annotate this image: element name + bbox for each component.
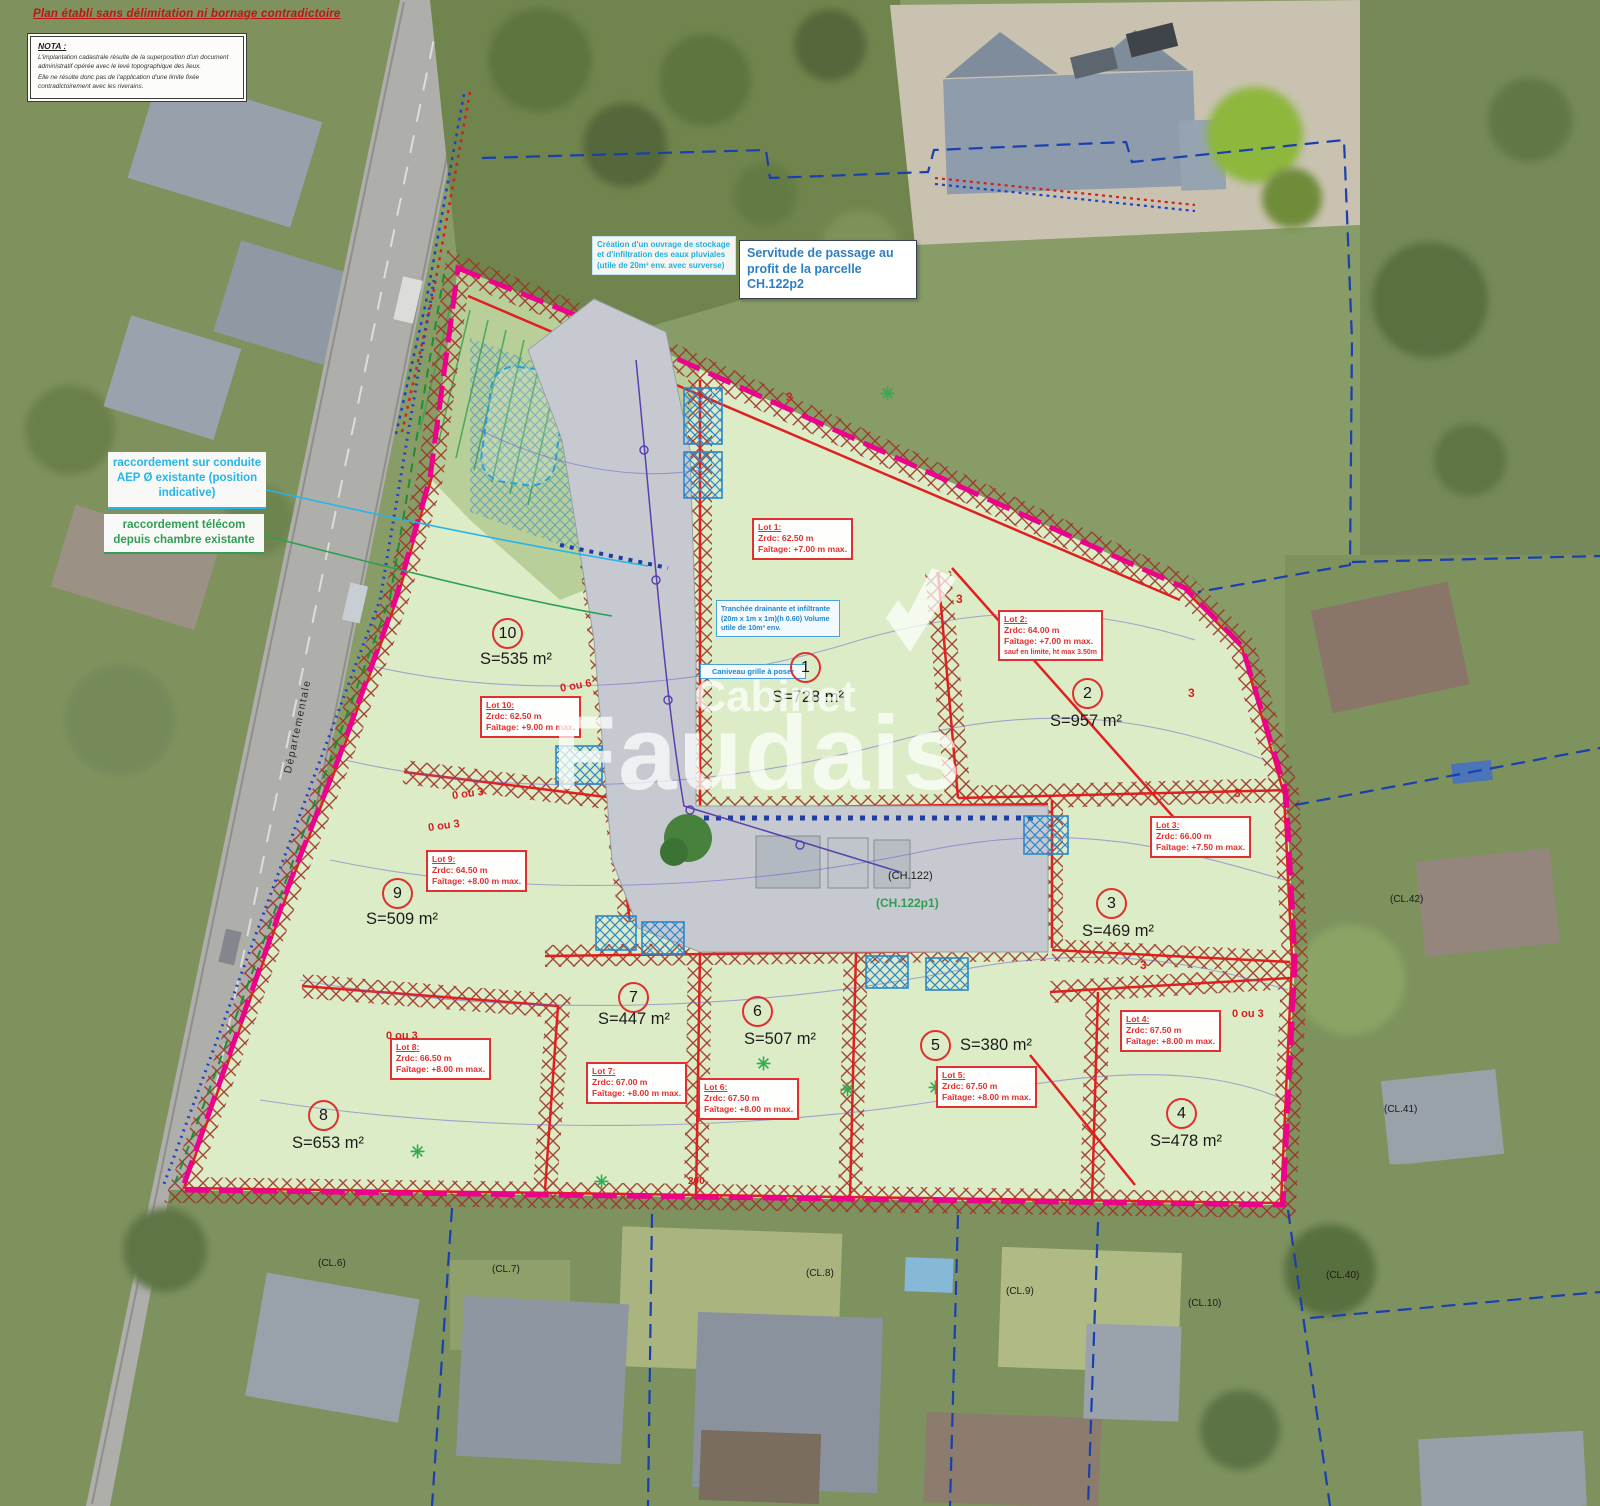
lot-4-faitage: Faîtage: +8.00 m max. [1126,1036,1215,1047]
scanned-subdivision-plan: ✳✳✳ ✳✳✳ Plan établi sans délimitation ni… [0,0,1600,1506]
parcel-ch122p1: (CH.122p1) [876,896,939,910]
setback-label-3: 0 ou 3 [386,1030,418,1042]
lot-8-faitage: Faîtage: +8.00 m max. [396,1064,485,1075]
svg-text:✳: ✳ [410,1142,425,1162]
lot-6-number: 6 [742,996,773,1027]
parcel-cl8: (CL.8) [806,1268,834,1279]
lot-4-number: 4 [1166,1098,1197,1129]
lot-9-area: S=509 m² [366,910,438,929]
lot-6-faitage: Faîtage: +8.00 m max. [704,1104,793,1115]
parcel-ch122: (CH.122) [888,870,933,882]
svg-text:✳: ✳ [840,1080,855,1100]
lot-3-info: Lot 3: Zrdc: 66.00 m Faîtage: +7.50 m ma… [1150,816,1251,858]
lot-8-number: 8 [308,1100,339,1131]
parcel-cl10: (CL.10) [1188,1298,1221,1309]
lot-9-info: Lot 9: Zrdc: 64.50 m Faîtage: +8.00 m ma… [426,850,527,892]
lot-7-label: Lot 7: [592,1066,681,1077]
lot-2-zrdc: Zrdc: 64.00 m [1004,625,1097,636]
servitude-note: Servitude de passage au profit de la par… [739,240,917,299]
lot-3-area: S=469 m² [1082,922,1154,941]
infiltration-trench-note: Tranchée drainante et infiltrante (20m x… [716,600,840,637]
aep-connection-note: raccordement sur conduite AEP Ø existant… [108,452,266,509]
lot-5-faitage: Faîtage: +8.00 m max. [942,1092,1031,1103]
lot-3-label: Lot 3: [1156,820,1245,831]
dimension-3d: 3 [1140,958,1147,972]
svg-text:✳: ✳ [756,1054,771,1074]
telecom-connection-note: raccordement télécom depuis chambre exis… [104,514,264,554]
plan-title: Plan établi sans délimitation ni bornage… [33,8,341,20]
lot-3-faitage: Faîtage: +7.50 m max. [1156,842,1245,853]
dimension-3c: 3 [1188,686,1195,700]
svg-text:✳: ✳ [594,1172,609,1192]
lot-2-faitage: Faîtage: +7.00 m max. [1004,636,1097,647]
lot-8-zrdc: Zrdc: 66.50 m [396,1053,485,1064]
dimension-3b: 3 [956,592,963,606]
lot-9-faitage: Faîtage: +8.00 m max. [432,876,521,887]
lot-4-label: Lot 4: [1126,1014,1215,1025]
lot-6-zrdc: Zrdc: 67.50 m [704,1093,793,1104]
lot-3-zrdc: Zrdc: 66.00 m [1156,831,1245,842]
parcel-cl42: (CL.42) [1390,894,1423,905]
lot-8-info: Lot 8: Zrdc: 66.50 m Faîtage: +8.00 m ma… [390,1038,491,1080]
lot-6-area: S=507 m² [744,1030,816,1049]
lot-3-number: 3 [1096,888,1127,919]
parcel-cl6: (CL.6) [318,1258,346,1269]
lot-2-number: 2 [1072,678,1103,709]
lot-7-faitage: Faîtage: +8.00 m max. [592,1088,681,1099]
lot-4-info: Lot 4: Zrdc: 67.50 m Faîtage: +8.00 m ma… [1120,1010,1221,1052]
lot-4-zrdc: Zrdc: 67.50 m [1126,1025,1215,1036]
lot-5-info: Lot 5: Zrdc: 67.50 m Faîtage: +8.00 m ma… [936,1066,1037,1108]
lot-5-number: 5 [920,1030,951,1061]
lot-4-area: S=478 m² [1150,1132,1222,1151]
lot-7-zrdc: Zrdc: 67.00 m [592,1077,681,1088]
lot-7-info: Lot 7: Zrdc: 67.00 m Faîtage: +8.00 m ma… [586,1062,687,1104]
lot-9-number: 9 [382,878,413,909]
lot-8-label: Lot 8: [396,1042,485,1053]
parcel-cl9: (CL.9) [1006,1286,1034,1297]
dimension-3e: 3 [1234,786,1241,800]
lot-7-number: 7 [618,982,649,1013]
parcel-cl7: (CL.7) [492,1264,520,1275]
parcel-cl40: (CL.40) [1326,1270,1359,1281]
lot-1-label: Lot 1: [758,522,847,533]
setback-label-4: 0 ou 3 [1232,1008,1264,1020]
stormwater-note: Création d'un ouvrage de stockage et d'i… [592,236,736,275]
watermark-line-2: Faudais [552,694,963,814]
lot-6-info: Lot 6: Zrdc: 67.50 m Faîtage: +8.00 m ma… [698,1078,799,1120]
lot-9-label: Lot 9: [432,854,521,865]
lot-5-area: S=380 m² [960,1036,1032,1055]
nota-heading: NOTA : [38,41,236,51]
lot-2-info: Lot 2: Zrdc: 64.00 m Faîtage: +7.00 m ma… [998,610,1103,661]
lot-10-area: S=535 m² [480,650,552,669]
nota-paragraph-1: L'implantation cadastrale résulte de la … [38,54,236,71]
lot-9-zrdc: Zrdc: 64.50 m [432,865,521,876]
nota-paragraph-2: Elle ne résulte donc pas de l'applicatio… [38,74,236,91]
lot-6-label: Lot 6: [704,1082,793,1093]
lot-5-label: Lot 5: [942,1070,1031,1081]
lot-1-faitage: Faîtage: +7.00 m max. [758,544,847,555]
svg-text:✳: ✳ [880,384,895,404]
nota-box: NOTA : L'implantation cadastrale résulte… [30,36,244,99]
lot-10-number: 10 [492,618,523,649]
lot-8-area: S=653 m² [292,1134,364,1153]
lot-7-area: S=447 m² [598,1010,670,1029]
lot-2-label: Lot 2: [1004,614,1097,625]
dimension-3a: 3 [786,390,793,404]
lot-1-zrdc: Zrdc: 62.50 m [758,533,847,544]
lot-2-extra: sauf en limite, ht max 3.50m [1004,648,1097,657]
parcel-cl41: (CL.41) [1384,1104,1417,1115]
dimension-200: 200 [688,1176,705,1187]
lot-5-zrdc: Zrdc: 67.50 m [942,1081,1031,1092]
lot-2-area: S=957 m² [1050,712,1122,731]
lot-1-info: Lot 1: Zrdc: 62.50 m Faîtage: +7.00 m ma… [752,518,853,560]
